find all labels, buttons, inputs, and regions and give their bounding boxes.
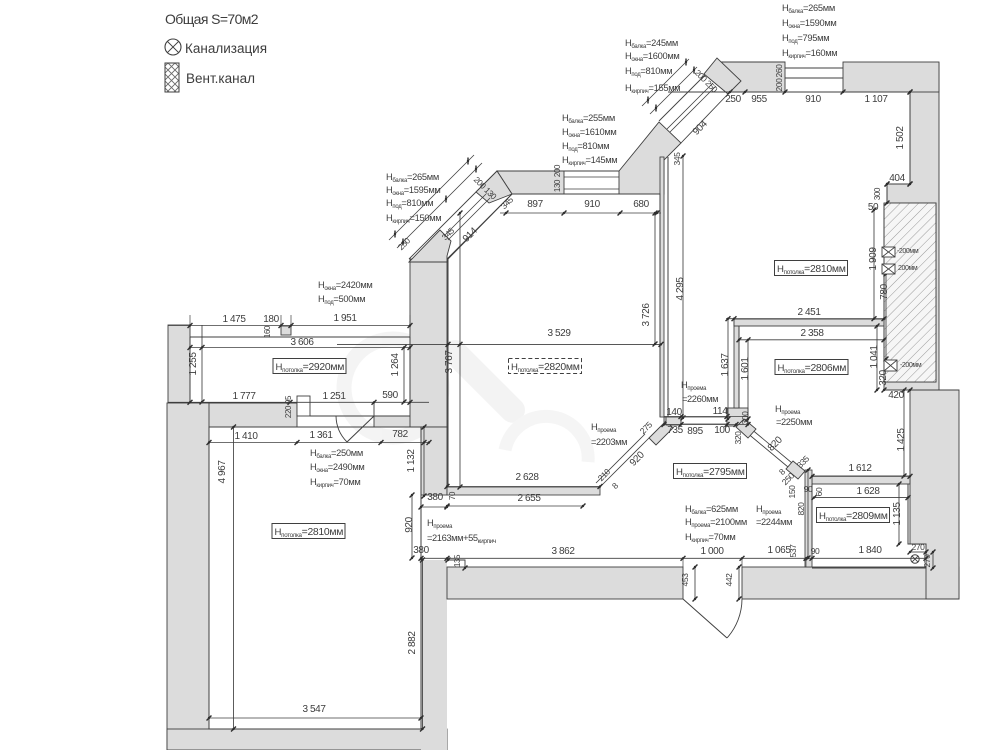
svg-text:200мм: 200мм: [898, 265, 918, 272]
svg-text:1 502: 1 502: [895, 126, 906, 150]
svg-text:270: 270: [912, 542, 926, 552]
svg-text:300: 300: [873, 187, 882, 200]
svg-text:220: 220: [284, 405, 293, 418]
svg-text:1 777: 1 777: [232, 391, 256, 402]
svg-text:1 065: 1 065: [767, 545, 791, 556]
svg-text:130: 130: [553, 179, 562, 192]
svg-text:270: 270: [922, 554, 932, 568]
svg-text:1 255: 1 255: [188, 352, 199, 376]
svg-text:380: 380: [413, 545, 429, 556]
svg-text:90: 90: [811, 546, 820, 556]
svg-text:1 264: 1 264: [390, 353, 401, 377]
svg-text:910: 910: [805, 94, 821, 105]
svg-text:1 135: 1 135: [892, 502, 903, 526]
svg-text:300: 300: [740, 411, 750, 425]
svg-text:260: 260: [774, 64, 784, 78]
svg-text:2 882: 2 882: [407, 631, 418, 655]
svg-text:1 909: 1 909: [868, 247, 879, 271]
svg-text:200: 200: [774, 78, 784, 92]
svg-text:380: 380: [427, 492, 443, 503]
svg-text:1 951: 1 951: [333, 313, 357, 324]
svg-text:3 547: 3 547: [302, 704, 326, 715]
svg-text:4 967: 4 967: [217, 460, 228, 484]
svg-text:1 132: 1 132: [406, 449, 417, 473]
svg-text:735: 735: [667, 425, 683, 436]
svg-text:135: 135: [453, 554, 462, 567]
svg-text:1 840: 1 840: [858, 545, 882, 556]
svg-text:-200мм: -200мм: [897, 248, 919, 255]
svg-text:150: 150: [787, 485, 797, 499]
svg-text:=2250мм: =2250мм: [776, 417, 812, 427]
svg-text:782: 782: [392, 429, 408, 440]
svg-text:3 862: 3 862: [551, 546, 575, 557]
svg-text:1 601: 1 601: [740, 357, 751, 381]
svg-text:70: 70: [448, 491, 457, 500]
svg-text:3 726: 3 726: [641, 303, 652, 327]
svg-text:114: 114: [713, 406, 729, 417]
svg-text:442: 442: [724, 573, 734, 587]
svg-text:404: 404: [889, 173, 905, 184]
svg-text:3 529: 3 529: [547, 328, 571, 339]
svg-text:=2203мм: =2203мм: [591, 437, 627, 447]
svg-text:4 295: 4 295: [675, 277, 686, 301]
svg-text:780: 780: [879, 283, 890, 299]
svg-text:897: 897: [527, 199, 543, 210]
svg-text:1 612: 1 612: [848, 463, 872, 474]
svg-text:160: 160: [263, 325, 272, 338]
svg-text:1 410: 1 410: [234, 431, 258, 442]
svg-text:1 251: 1 251: [322, 391, 346, 402]
svg-text:Канализация: Канализация: [185, 41, 267, 56]
svg-text:955: 955: [751, 94, 767, 105]
svg-text:=2244мм: =2244мм: [756, 517, 792, 527]
svg-text:50: 50: [868, 202, 879, 213]
svg-text:3 767: 3 767: [444, 350, 455, 374]
svg-text:3 606: 3 606: [290, 337, 314, 348]
svg-text:Общая S=70м2: Общая S=70м2: [165, 11, 259, 27]
svg-text:1 475: 1 475: [222, 314, 246, 325]
svg-text:1 628: 1 628: [856, 486, 880, 497]
svg-text:680: 680: [633, 199, 649, 210]
svg-text:2 358: 2 358: [800, 328, 824, 339]
svg-text:1 425: 1 425: [896, 428, 907, 452]
svg-text:60: 60: [814, 487, 824, 496]
svg-text:820: 820: [796, 502, 806, 516]
svg-text:590: 590: [382, 390, 398, 401]
svg-text:345: 345: [672, 152, 682, 166]
svg-text:420: 420: [888, 390, 904, 401]
svg-text:320: 320: [878, 369, 889, 385]
svg-text:90: 90: [804, 484, 813, 494]
svg-text:895: 895: [687, 426, 703, 437]
svg-text:250: 250: [725, 94, 741, 105]
svg-text:920: 920: [404, 516, 415, 532]
svg-text:100: 100: [714, 425, 730, 436]
svg-text:2 451: 2 451: [797, 307, 821, 318]
svg-text:=2260мм: =2260мм: [682, 394, 718, 404]
svg-text:1 107: 1 107: [864, 94, 888, 105]
svg-text:2 628: 2 628: [515, 472, 539, 483]
svg-text:1 041: 1 041: [869, 345, 880, 369]
svg-text:1 000: 1 000: [700, 546, 724, 557]
svg-text:910: 910: [584, 199, 600, 210]
svg-text:180: 180: [263, 314, 279, 325]
svg-text:Вент.канал: Вент.канал: [186, 71, 255, 86]
svg-text:-200мм: -200мм: [900, 362, 922, 369]
svg-text:1 637: 1 637: [720, 353, 731, 377]
svg-text:200: 200: [553, 164, 562, 177]
svg-text:1 361: 1 361: [309, 430, 333, 441]
svg-text:2 655: 2 655: [517, 493, 541, 504]
svg-text:453: 453: [680, 573, 690, 587]
svg-text:95: 95: [284, 395, 293, 404]
svg-text:140: 140: [666, 407, 682, 418]
svg-text:320: 320: [733, 431, 743, 445]
